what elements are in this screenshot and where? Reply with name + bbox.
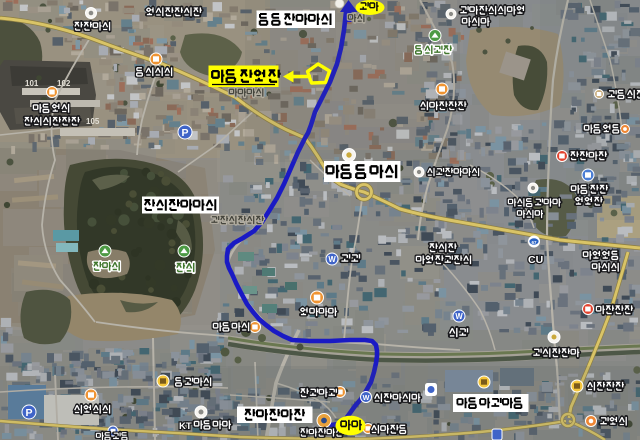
svg-text:67: 67 (531, 240, 537, 245)
svg-text:KT: KT (179, 421, 192, 432)
svg-text:W: W (455, 312, 463, 321)
svg-text:102: 102 (57, 79, 71, 88)
svg-text:P: P (25, 407, 32, 419)
svg-text:W: W (328, 255, 336, 264)
svg-text:W: W (363, 393, 370, 402)
svg-text:P: P (181, 127, 188, 139)
svg-text:CU: CU (528, 254, 543, 266)
svg-text:101: 101 (25, 79, 39, 88)
svg-text:105: 105 (86, 117, 100, 126)
